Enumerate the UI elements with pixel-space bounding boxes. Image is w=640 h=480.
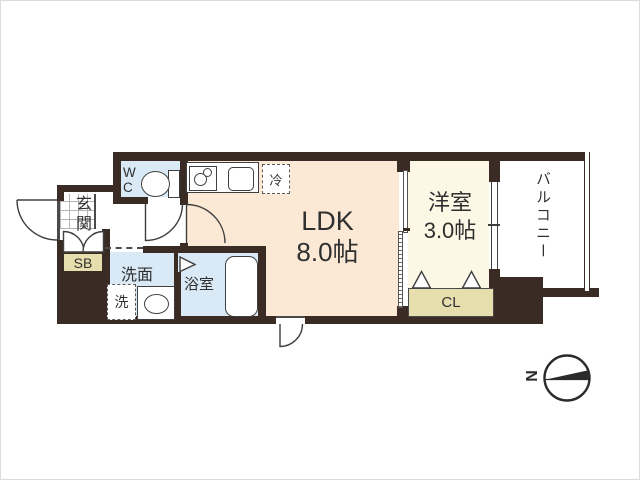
toilet-bowl-icon <box>141 171 170 197</box>
wall-segment <box>305 316 500 324</box>
wall-segment <box>113 152 588 161</box>
wall-segment <box>489 277 543 324</box>
washing-machine-label: 洗 <box>115 292 129 312</box>
wc-label: W C <box>123 165 136 195</box>
wall-segment <box>57 273 110 324</box>
wall-segment <box>57 192 64 201</box>
terrace-door-opening <box>276 316 305 318</box>
shoe-box-label: SB <box>74 255 93 271</box>
floor-plan: SB CL 冷 洗 玄関 W C 洗面 浴室 LDK 8.0帖 洋室 3.0帖 … <box>0 0 640 480</box>
bathtub-icon <box>225 256 258 317</box>
closet: CL <box>408 288 494 317</box>
washing-machine-space: 洗 <box>107 284 136 320</box>
balcony-label: バルコニー <box>532 171 553 261</box>
washbasin-icon <box>144 294 169 314</box>
entrance-step-line <box>94 194 96 229</box>
wall-segment <box>143 246 266 253</box>
wc-label-line1: W <box>123 165 136 180</box>
compass-north-label: N <box>524 370 541 382</box>
wall-segment <box>57 185 121 192</box>
entrance-door-opening <box>57 201 60 240</box>
bedroom-name: 洋室 <box>404 189 496 217</box>
wall-segment <box>113 197 148 204</box>
sliding-door-panel-hatched <box>398 231 404 308</box>
ldk-name: LDK <box>270 206 385 237</box>
refrigerator-label: 冷 <box>269 170 282 189</box>
wc-door-arc <box>146 204 183 241</box>
wall-segment <box>258 246 266 316</box>
entrance-door-arc <box>17 200 57 240</box>
wall-segment <box>489 161 500 182</box>
shoe-box: SB <box>62 252 104 273</box>
stove-burner-icon <box>203 168 212 177</box>
wall-segment <box>543 288 599 297</box>
ldk-label: LDK 8.0帖 <box>270 206 385 267</box>
bathroom-label: 浴室 <box>184 273 214 294</box>
closet-label: CL <box>441 294 460 311</box>
refrigerator-space: 冷 <box>262 164 290 194</box>
wc-label-line2: C <box>123 180 136 195</box>
balcony-railing <box>584 152 590 291</box>
compass-circle <box>545 356 590 401</box>
bedroom-size: 3.0帖 <box>404 217 496 245</box>
washroom-label: 洗面 <box>121 261 153 285</box>
bedroom-label: 洋室 3.0帖 <box>404 189 496 245</box>
entrance-label: 玄関 <box>69 195 93 235</box>
ldk-size: 8.0帖 <box>270 237 385 267</box>
bath-door-notch <box>178 253 200 272</box>
terrace-door-arc <box>280 324 303 347</box>
compass-needle-icon <box>546 370 590 380</box>
washroom-threshold-dashed <box>105 247 143 249</box>
kitchen-sink-icon <box>228 167 254 191</box>
compass: N <box>524 356 590 401</box>
